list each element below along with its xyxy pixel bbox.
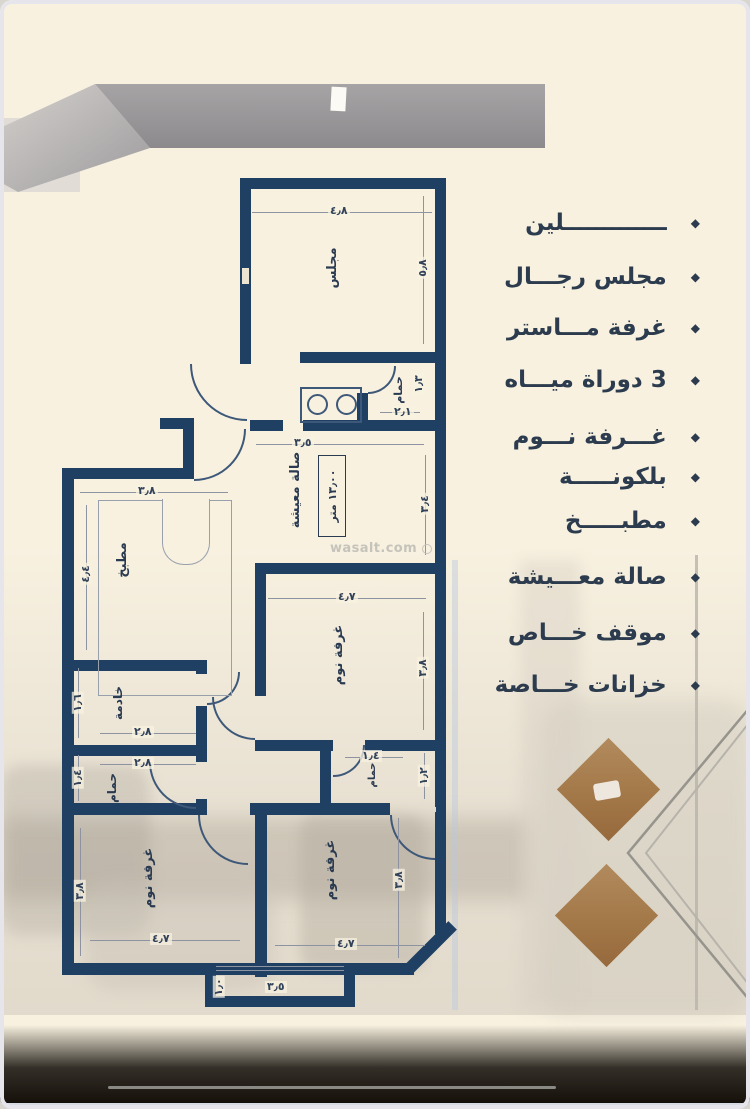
chevron-line-inner — [646, 714, 750, 994]
chevron-decor — [0, 0, 750, 1109]
bottom-band-line — [108, 1086, 556, 1089]
bottom-frame-strip — [0, 1103, 750, 1109]
floor-plan-flyer: ٤٫٨ ٥٫٨ ٢٫١ ١٫٣ ٣٫٥ ٣٫٤ ٣٫٨ ٤٫٤ ٤٫٧ ٣٫٨ … — [0, 0, 750, 1109]
bottom-dark-band — [0, 1025, 750, 1103]
